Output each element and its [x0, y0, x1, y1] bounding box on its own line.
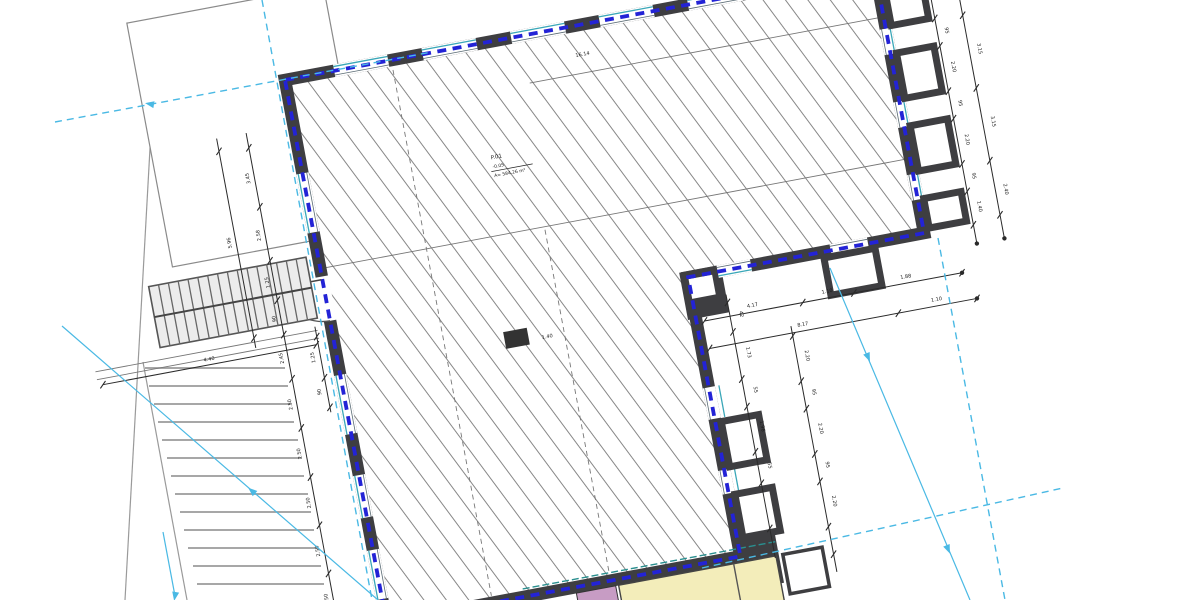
bay-wing-2 — [735, 487, 780, 537]
dim-label: 2.50 — [296, 448, 304, 460]
slope-arrow-icon — [171, 591, 179, 600]
dim-label: 2.20 — [803, 350, 811, 362]
dim-label: 3.15 — [975, 43, 983, 55]
dim-label: 90 — [316, 388, 323, 395]
dim-label: 2.20 — [830, 495, 838, 507]
dim-label: 95 — [824, 461, 831, 468]
dim-label: 2.50 — [287, 398, 295, 410]
dim-label: 1.25 — [310, 351, 318, 363]
dim-label: 2.20 — [816, 422, 824, 434]
dim-label: 2.50 — [305, 497, 313, 509]
dim-label: 1.88 — [900, 273, 912, 281]
dim-label: 95 — [943, 27, 950, 34]
slope-arrow-icon — [863, 352, 873, 363]
slope-line-left-edge — [163, 532, 175, 596]
bay-wing-lower — [783, 547, 830, 594]
dim-label: 4.17 — [746, 302, 758, 310]
parking-edge-line — [143, 362, 187, 600]
dim-label: 42 — [737, 310, 744, 317]
bay-right-3 — [910, 119, 956, 171]
floor-plan-svg: 1.40 P.01 -0.05 A= 584.26 m² 16.14 5.96 … — [0, 0, 1200, 600]
bay-right-1 — [883, 0, 929, 26]
building-plan: 1.40 P.01 -0.05 A= 584.26 m² 16.14 5.96 … — [33, 0, 1081, 600]
dim-label: 3.15 — [989, 115, 997, 127]
dim-label: 95 — [810, 388, 817, 395]
dim-label: 55 — [766, 462, 773, 469]
dim-label: 2.20 — [963, 134, 971, 146]
slope-arrow-icon — [943, 544, 953, 555]
dim-label: 4.40 — [203, 356, 215, 364]
dim-label: 95 — [956, 100, 963, 107]
bay-right-4 — [924, 192, 967, 228]
dim-label: 90 — [271, 315, 278, 322]
dim-label: 8.17 — [797, 321, 809, 329]
dim-label: 55 — [751, 386, 758, 393]
hall-hatch — [285, 0, 976, 600]
bay-bottom — [824, 248, 882, 295]
dim-label: 2.40 — [1001, 183, 1009, 195]
dim-label: 2.45 — [278, 352, 286, 364]
floor-plan-canvas: 1.40 P.01 -0.05 A= 584.26 m² 16.14 5.96 … — [0, 0, 1200, 600]
dim-label: 2.20 — [949, 61, 957, 73]
dim-label: 1.73 — [744, 346, 752, 358]
dim-label: 1.10 — [931, 296, 943, 304]
dim-label: 2.50 — [323, 593, 331, 600]
bay-right-2 — [896, 46, 942, 98]
dim-label: 1.40 — [975, 200, 983, 212]
dim-label: 95 — [970, 172, 977, 179]
